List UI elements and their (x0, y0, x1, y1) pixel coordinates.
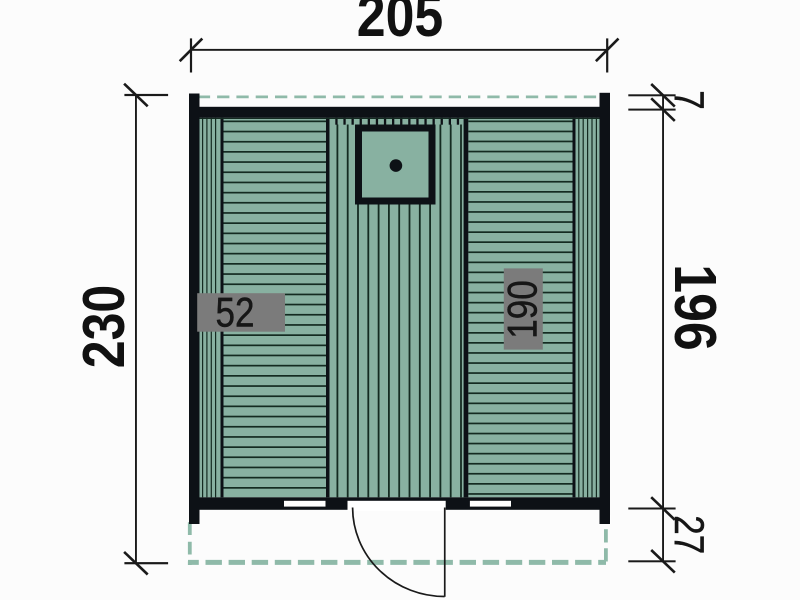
svg-text:52: 52 (216, 290, 255, 337)
svg-text:205: 205 (357, 0, 444, 49)
svg-text:27: 27 (665, 515, 712, 554)
svg-text:190: 190 (499, 280, 546, 338)
svg-text:196: 196 (662, 264, 729, 351)
svg-text:7: 7 (665, 90, 712, 109)
svg-text:230: 230 (70, 285, 137, 368)
